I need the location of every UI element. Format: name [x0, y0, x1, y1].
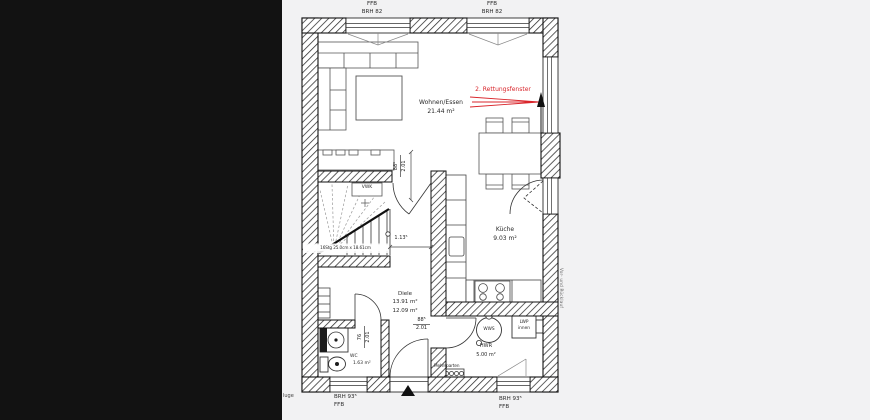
window-label-top-left-line2: BRH 82 — [347, 9, 397, 17]
window-label-top-left: FFB BRH 82 — [347, 1, 397, 17]
stove — [475, 281, 510, 302]
window-label-bottom-right: BRH 93⁵ FFB — [497, 396, 533, 412]
room-kitchen-name: Küche — [480, 226, 530, 235]
window-label-top-right-line1: FFB — [467, 1, 517, 9]
lowboard — [318, 150, 394, 170]
door-dim-wc-height: 2.01 — [365, 326, 372, 348]
toilet — [320, 357, 346, 372]
heat-pump-label-line2: innen — [512, 326, 536, 332]
window-label-top-right-line2: BRH 82 — [467, 9, 517, 17]
radiator — [318, 288, 330, 318]
door-dim-wc: 76 2.01 — [357, 326, 371, 348]
window-hwr — [497, 377, 530, 392]
wc-sink — [320, 328, 348, 352]
room-living-name: Wohnen/Essen — [413, 99, 469, 108]
window-top-right — [467, 18, 529, 33]
wall-wc-right — [381, 320, 389, 377]
vwk-label: VWK — [352, 185, 382, 192]
window-label-bottom-left: BRH 93⁵ FFB — [330, 394, 368, 410]
room-kitchen-area: 9.03 m² — [480, 235, 530, 244]
wall-kitchen-hwr — [446, 302, 558, 316]
door-dim-hall-hwr-height: 2.01 — [413, 325, 430, 332]
window-label-top-right: FFB BRH 82 — [467, 1, 517, 17]
kitchen-sink — [449, 237, 464, 256]
stair-spec-label: 16Stg 25.0cm x 18.61cm — [303, 245, 388, 251]
pipe-note-label: Vor- und Rücklauf — [559, 268, 564, 348]
door-dim-living-hall-height: 2.01 — [401, 155, 408, 177]
room-label-living: Wohnen/Essen 21.44 m² — [413, 99, 469, 116]
window-rescue — [543, 57, 558, 133]
room-hall-name: Diele — [381, 290, 429, 298]
door-dim-hall-hwr-width: 88⁵ — [413, 317, 430, 325]
room-label-wc: WC 1.63 m² — [350, 353, 380, 367]
window-top-left — [346, 18, 410, 33]
window-label-bottom-left-line1: BRH 93⁵ — [334, 394, 368, 402]
window-label-top-left-line1: FFB — [347, 1, 397, 9]
edge-text-fragment: luge — [283, 393, 301, 400]
room-wc-area: 1.63 m² — [350, 360, 380, 367]
door-dim-living-hall-width: 88⁵ — [393, 155, 401, 177]
corridor-dim-label: 1.13⁵ — [390, 235, 412, 242]
window-label-bottom-left-line2: FFB — [334, 402, 368, 410]
floor-plan-screenshot: FFB BRH 82 FFB BRH 82 BRH 93⁵ FFB BRH 93… — [0, 0, 870, 420]
wall-left — [302, 18, 318, 392]
heat-pump-label: LWP innen — [512, 320, 536, 331]
room-label-hwr: HWR 5.00 m² — [466, 342, 506, 359]
window-label-bottom-right-line1: BRH 93⁵ — [499, 396, 533, 404]
window-label-bottom-right-line2: FFB — [499, 404, 533, 412]
room-hwr-name: HWR — [466, 342, 506, 351]
rescue-window-label: 2. Rettungsfenster — [463, 86, 543, 95]
room-hall-area2: 12.09 m² — [381, 307, 429, 315]
floor-plan-drawing — [0, 0, 870, 420]
room-label-hall: Diele 13.91 m² 12.09 m² — [381, 290, 429, 315]
window-wc — [330, 377, 367, 392]
room-hwr-area: 5.00 m² — [466, 351, 506, 360]
room-label-kitchen: Küche 9.03 m² — [480, 226, 530, 243]
coffee-table — [356, 76, 402, 120]
window-kitchen — [543, 178, 558, 214]
wall-stair-top — [318, 171, 392, 182]
wall-kitchen-left — [431, 171, 446, 316]
door-dim-living-hall: 88⁵ 2.01 — [393, 155, 407, 177]
room-living-area: 21.44 m² — [413, 108, 469, 117]
room-hall-area1: 13.91 m² — [381, 298, 429, 306]
door-dim-wc-width: 76 — [357, 326, 365, 348]
wall-wc-top — [318, 320, 355, 328]
door-dim-hall-hwr: 88⁵ 2.01 — [413, 317, 430, 331]
wall-stair-bottom — [318, 256, 390, 267]
wws-label: WWS — [477, 327, 501, 333]
utility-connection-label: Mehrsparten — [434, 363, 468, 369]
room-wc-name: WC — [350, 353, 380, 360]
